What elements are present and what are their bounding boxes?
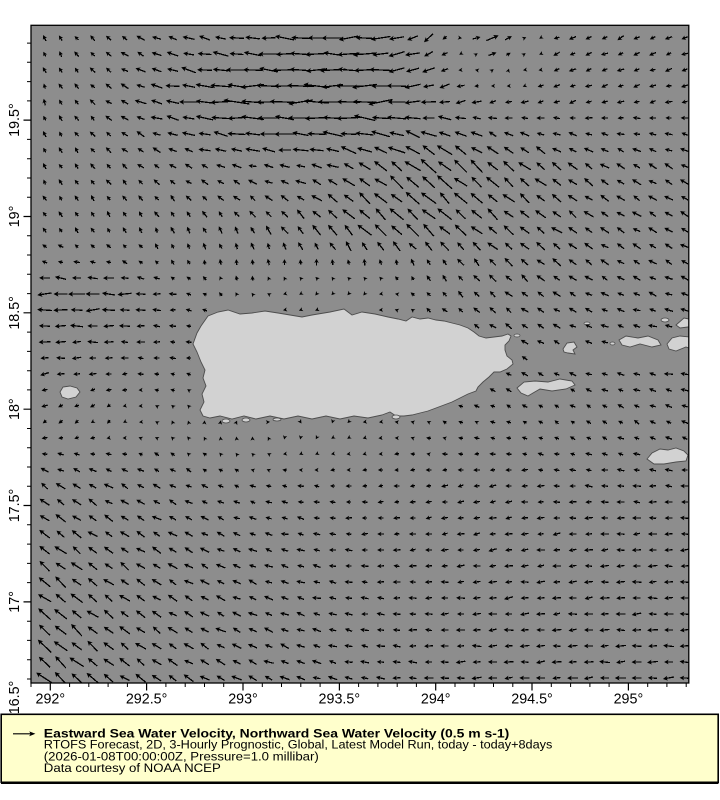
- svg-text:18.5°: 18.5°: [7, 296, 23, 330]
- svg-text:293°: 293°: [228, 692, 258, 708]
- svg-text:Data courtesy of NOAA NCEP: Data courtesy of NOAA NCEP: [44, 761, 221, 775]
- svg-text:294.5°: 294.5°: [511, 692, 553, 708]
- svg-text:19.5°: 19.5°: [7, 103, 23, 137]
- svg-text:295°: 295°: [614, 692, 644, 708]
- svg-text:292.5°: 292.5°: [126, 692, 168, 708]
- svg-text:17°: 17°: [7, 591, 23, 613]
- svg-text:19°: 19°: [7, 206, 23, 228]
- svg-text:16.5°: 16.5°: [7, 681, 23, 715]
- svg-text:294°: 294°: [421, 692, 451, 708]
- svg-text:293.5°: 293.5°: [319, 692, 361, 708]
- svg-text:292°: 292°: [36, 692, 66, 708]
- svg-text:18°: 18°: [7, 398, 23, 420]
- svg-text:17.5°: 17.5°: [7, 489, 23, 523]
